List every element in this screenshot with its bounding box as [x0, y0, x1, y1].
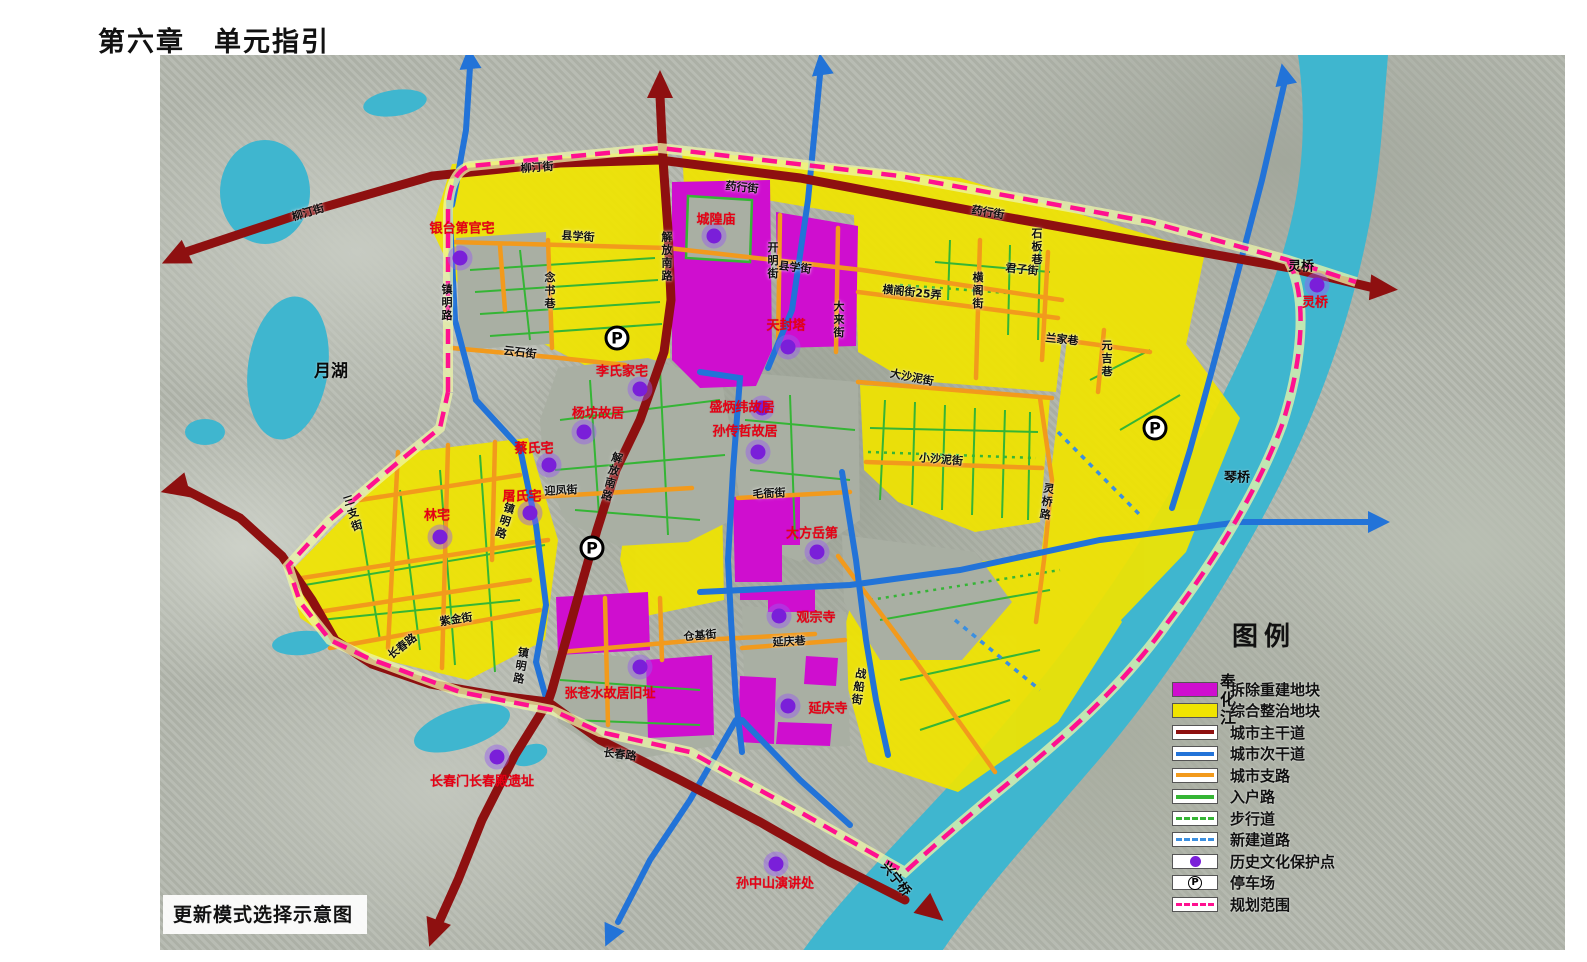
- legend-item-label: 城市主干道: [1230, 722, 1305, 743]
- legend-item: 城市次干道: [1172, 746, 1432, 762]
- legend-item: 新建道路: [1172, 832, 1432, 848]
- legend-item: 城市支路: [1172, 767, 1432, 783]
- legend-item: 步行道: [1172, 810, 1432, 826]
- legend-item: 综合整治地块: [1172, 703, 1432, 719]
- legend-swatch-symbol: [1176, 795, 1214, 799]
- legend-swatch-parking: P: [1172, 875, 1218, 890]
- legend-swatch-symbol: [1176, 730, 1214, 734]
- legend-swatch-symbol: P: [1188, 876, 1202, 890]
- legend-item-label: 入户路: [1230, 786, 1275, 807]
- legend-swatch-line: [1172, 725, 1218, 740]
- legend-item-label: 城市支路: [1230, 765, 1290, 786]
- legend-swatch-line: [1172, 768, 1218, 783]
- legend-swatch-symbol: [1173, 683, 1217, 696]
- legend-item: 拆除重建地块: [1172, 681, 1432, 697]
- legend-swatch-symbol: [1176, 817, 1214, 820]
- legend-title: 图例: [1232, 616, 1432, 653]
- legend-swatch-symbol: [1190, 856, 1201, 867]
- legend-swatch-dash: [1172, 897, 1218, 912]
- legend-items: 拆除重建地块综合整治地块城市主干道城市次干道城市支路入户路步行道新建道路历史文化…: [1172, 681, 1432, 912]
- legend-item: 城市主干道: [1172, 724, 1432, 740]
- legend-item-label: 拆除重建地块: [1230, 679, 1320, 700]
- moon-lake-south: [238, 291, 337, 445]
- legend-swatch-fill: [1172, 682, 1218, 697]
- legend-swatch-symbol: [1176, 838, 1214, 841]
- legend-swatch-symbol: [1176, 773, 1214, 777]
- legend-item: 历史文化保护点: [1172, 853, 1432, 869]
- legend-item-label: 规划范围: [1230, 894, 1290, 915]
- legend-swatch-line: [1172, 789, 1218, 804]
- legend-swatch-line: [1172, 746, 1218, 761]
- legend-swatch-dash: [1172, 832, 1218, 847]
- legend-swatch-symbol: [1173, 704, 1217, 717]
- map-legend: 图例 拆除重建地块综合整治地块城市主干道城市次干道城市支路入户路步行道新建道路历…: [1172, 616, 1432, 918]
- planning-document-page: 第六章 单元指引: [0, 0, 1587, 962]
- legend-item-label: 停车场: [1230, 872, 1275, 893]
- legend-item-label: 步行道: [1230, 808, 1275, 829]
- legend-swatch-dash: [1172, 811, 1218, 826]
- legend-item: P停车场: [1172, 875, 1432, 891]
- legend-swatch-symbol: [1176, 903, 1214, 906]
- legend-item: 入户路: [1172, 789, 1432, 805]
- legend-swatch-symbol: [1176, 752, 1214, 756]
- legend-item: 规划范围: [1172, 896, 1432, 912]
- legend-swatch-dot: [1172, 854, 1218, 869]
- legend-item-label: 城市次干道: [1230, 743, 1305, 764]
- legend-swatch-fill: [1172, 703, 1218, 718]
- page-title: 第六章 单元指引: [98, 20, 330, 59]
- legend-item-label: 新建道路: [1230, 829, 1290, 850]
- legend-item-label: 综合整治地块: [1230, 700, 1320, 721]
- legend-item-label: 历史文化保护点: [1230, 851, 1335, 872]
- figure-caption: 更新模式选择示意图: [163, 895, 367, 934]
